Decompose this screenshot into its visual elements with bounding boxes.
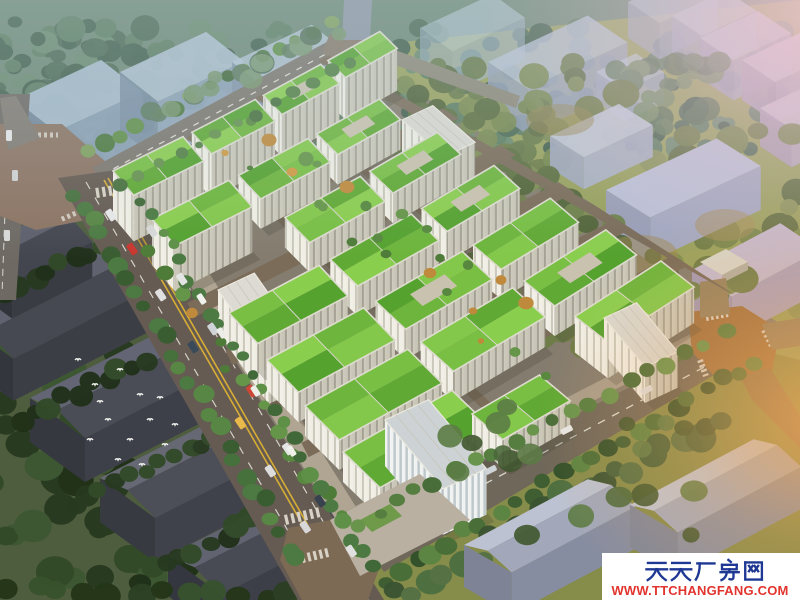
- svg-text:WWW.TTCHANGFANG.COM: WWW.TTCHANGFANG.COM: [611, 583, 788, 598]
